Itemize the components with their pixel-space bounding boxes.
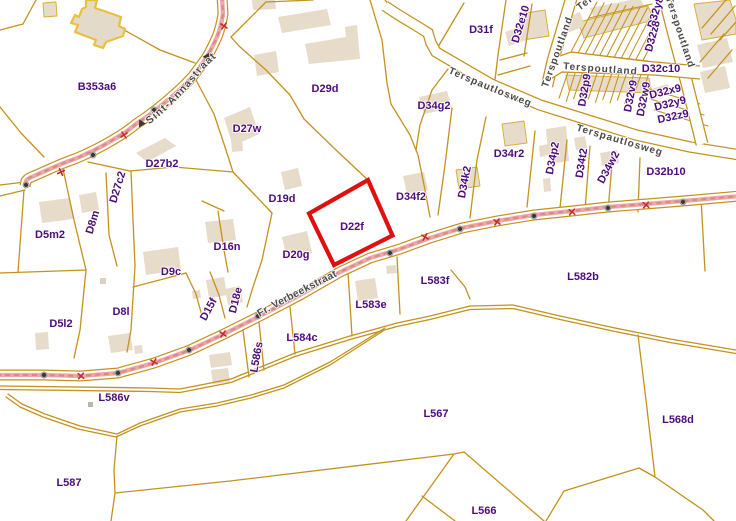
svg-text:L584c: L584c — [286, 332, 317, 344]
svg-text:L586v: L586v — [98, 392, 130, 404]
svg-text:D8l: D8l — [112, 306, 129, 318]
svg-text:L566: L566 — [471, 505, 496, 517]
svg-text:D5l2: D5l2 — [49, 318, 72, 330]
svg-text:L567: L567 — [423, 408, 448, 420]
svg-text:D32c10: D32c10 — [642, 63, 681, 75]
svg-text:D19d: D19d — [269, 193, 296, 205]
svg-text:D31f: D31f — [469, 24, 493, 36]
svg-text:B353a6: B353a6 — [78, 81, 117, 93]
svg-text:D34r2: D34r2 — [494, 148, 525, 160]
svg-text:D32b10: D32b10 — [646, 166, 685, 178]
svg-text:D29d: D29d — [312, 83, 339, 95]
svg-text:L587: L587 — [56, 477, 81, 489]
svg-text:D34g2: D34g2 — [417, 100, 450, 112]
svg-text:D34f2: D34f2 — [396, 191, 426, 203]
svg-text:D16n: D16n — [214, 241, 241, 253]
svg-text:L582b: L582b — [567, 271, 599, 283]
svg-text:L583f: L583f — [421, 275, 450, 287]
svg-text:D22f: D22f — [340, 221, 364, 233]
svg-text:D27b2: D27b2 — [145, 158, 178, 170]
svg-text:L583e: L583e — [355, 299, 386, 311]
svg-text:L568d: L568d — [662, 414, 694, 426]
svg-text:D5m2: D5m2 — [35, 229, 65, 241]
svg-text:D27w: D27w — [233, 123, 262, 135]
svg-text:D9c: D9c — [161, 266, 181, 278]
svg-text:D20g: D20g — [283, 249, 310, 261]
